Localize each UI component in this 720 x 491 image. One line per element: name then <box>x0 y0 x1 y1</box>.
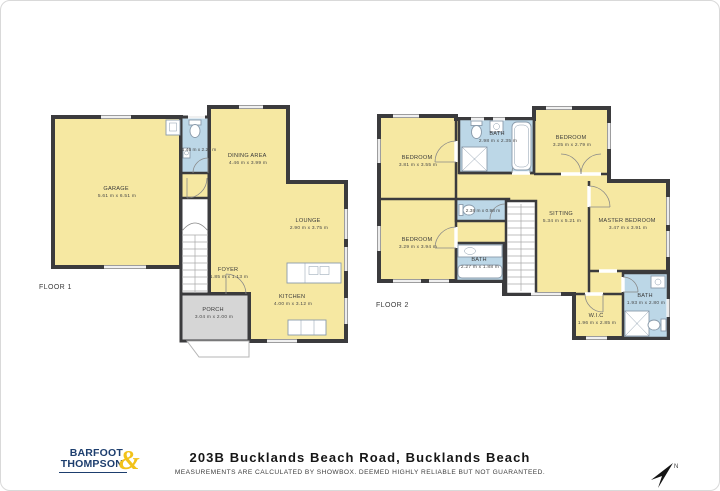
floorplan-canvas: GARAGE 5.61 m x 6.51 m 1.46 m x 2.20 m D… <box>1 1 720 491</box>
floor2-caption: FLOOR 2 <box>376 302 409 309</box>
floor1-caption: FLOOR 1 <box>39 284 72 291</box>
measurement-disclaimer: MEASUREMENTS ARE CALCULATED BY SHOWBOX. … <box>1 469 719 476</box>
floorplan-page: GARAGE 5.61 m x 6.51 m 1.46 m x 2.20 m D… <box>0 0 720 491</box>
wc-label: 1.46 m x 2.20 m <box>182 147 216 153</box>
floor2-plan: BEDROOM 3.81 m x 3.55 m BATH 2.98 m x 2.… <box>376 108 668 338</box>
hall-strip <box>183 173 208 198</box>
floor2-stairs <box>506 201 536 294</box>
compass-n-label: N <box>674 464 678 470</box>
floor1-plan: GARAGE 5.61 m x 6.51 m 1.46 m x 2.20 m D… <box>39 107 346 357</box>
hall-wc-label: 2.38 m x 0.98 m <box>466 208 500 214</box>
property-address-title: 203B Bucklands Beach Road, Bucklands Bea… <box>1 450 719 465</box>
north-compass-icon: N <box>645 460 679 490</box>
garage-room <box>53 117 181 267</box>
entry-deck <box>187 341 249 357</box>
laundry-tub <box>166 120 180 135</box>
